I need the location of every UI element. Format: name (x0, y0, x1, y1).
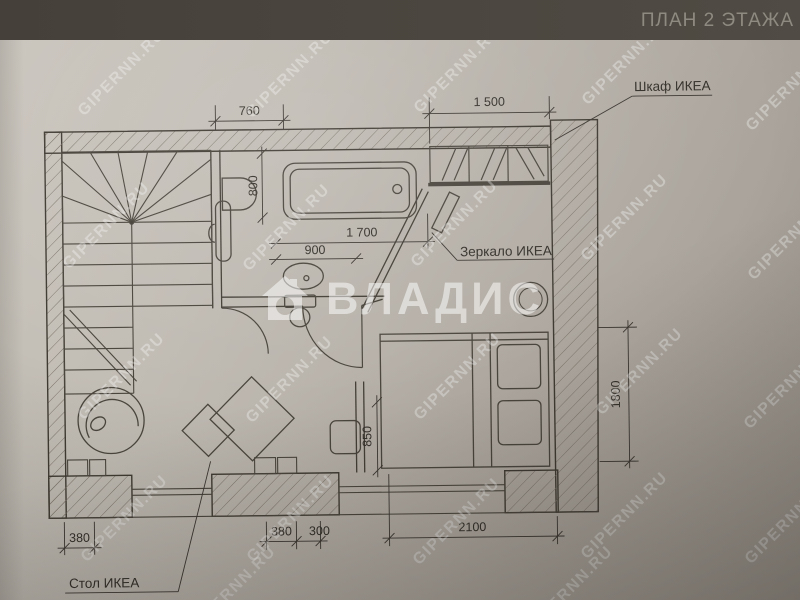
label-table: Стол ИКЕА (69, 575, 139, 591)
label-mirror: Зеркало ИКЕА (460, 243, 552, 259)
toilet (285, 295, 316, 327)
bathtub (283, 162, 417, 220)
staircase (62, 150, 214, 394)
dim-bedroom-right: 1800 (609, 380, 623, 408)
mirror (432, 192, 460, 233)
doors (222, 305, 363, 369)
dim-bottom-mid-a: 380 (271, 524, 292, 538)
label-wardrobe: Шкаф ИКЕА (634, 78, 711, 94)
dim-wardrobe: 1 500 (473, 95, 504, 109)
dim-bottom-mid-b: 300 (309, 524, 330, 538)
washing-machine (513, 282, 547, 316)
page-title: ПЛАН 2 ЭТАЖА (641, 10, 794, 31)
partitions (211, 148, 432, 475)
washbasin (283, 263, 323, 289)
furniture-labels: Шкаф ИКЕА Зеркало ИКЕА Стол ИКЕА (59, 78, 718, 593)
dim-bottom-left: 380 (69, 531, 90, 545)
sitting-area (78, 376, 295, 463)
floor-plan-photo: 760 1 500 800 1 700 900 850 1800 380 380… (0, 0, 800, 600)
wardrobe (428, 145, 550, 184)
walls (44, 120, 602, 519)
photo-top-bar: ПЛАН 2 ЭТАЖА (0, 0, 800, 40)
dim-bottom-window: 2100 (458, 520, 486, 534)
dim-bath-width: 1 700 (346, 225, 377, 239)
dim-sink-wall: 900 (305, 243, 326, 257)
round-chair (78, 387, 145, 454)
chair (182, 404, 235, 457)
dim-bed-side: 850 (360, 426, 374, 447)
bed (380, 332, 550, 468)
dim-bath-height: 800 (246, 175, 260, 196)
floor-plan-drawing: 760 1 500 800 1 700 900 850 1800 380 380… (0, 0, 800, 600)
bedroom (327, 145, 554, 469)
dim-stairs-top: 760 (239, 104, 260, 118)
